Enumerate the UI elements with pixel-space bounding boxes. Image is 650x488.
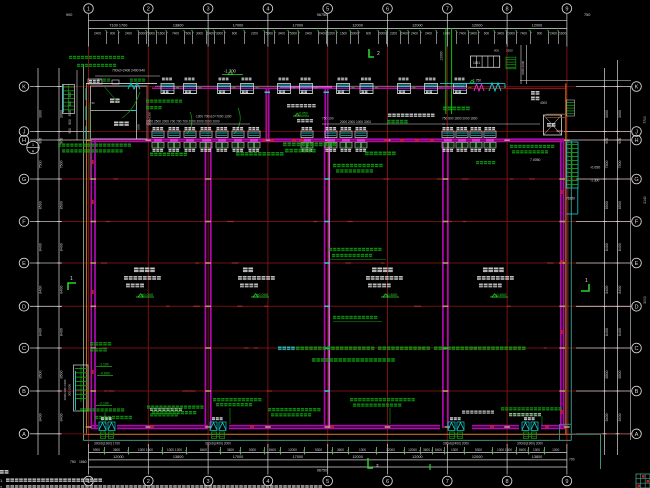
svg-text:13800: 13800: [532, 455, 543, 459]
svg-text:3000: 3000: [508, 31, 515, 35]
svg-text:G: G: [634, 177, 638, 183]
svg-text:2000x300=6300: 2000x300=6300: [63, 379, 67, 400]
svg-text:2.: 2.: [0, 485, 3, 488]
svg-text:1300 700x10=7000 1300: 1300 700x10=7000 1300: [196, 115, 232, 119]
svg-text:D: D: [634, 304, 638, 310]
svg-text:7500: 7500: [618, 161, 622, 169]
svg-text:8500: 8500: [605, 201, 609, 209]
svg-text:900: 900: [97, 78, 102, 82]
svg-text:1600: 1600: [158, 31, 165, 35]
svg-text:7500: 7500: [39, 161, 43, 169]
svg-text:7: 7: [446, 479, 449, 485]
svg-text:1300 1300: 1300 1300: [167, 448, 182, 452]
svg-text:600: 600: [484, 31, 490, 35]
svg-text:7500: 7500: [60, 161, 64, 169]
svg-text:13000: 13000: [440, 51, 444, 60]
svg-text:5000: 5000: [266, 31, 273, 35]
svg-text:3: 3: [207, 479, 210, 485]
svg-text:8400: 8400: [200, 448, 207, 452]
svg-text:3000: 3000: [216, 31, 223, 35]
svg-text::: :: [9, 470, 10, 475]
svg-text:600: 600: [186, 31, 192, 35]
svg-text:300x6(1900) 1700: 300x6(1900) 1700: [94, 442, 120, 446]
svg-text:8500: 8500: [39, 201, 43, 209]
svg-text:8400: 8400: [435, 448, 442, 452]
svg-text:700x2+2400 2400 940: 700x2+2400 2400 940: [112, 69, 145, 73]
svg-text:750 100: 750 100: [322, 117, 334, 121]
svg-text:1300 1300: 1300 1300: [497, 448, 512, 452]
svg-text:2400: 2400: [411, 31, 418, 35]
svg-text:H: H: [22, 138, 26, 144]
svg-text:8400: 8400: [39, 413, 43, 421]
svg-text:12000: 12000: [412, 23, 423, 27]
svg-text:7400: 7400: [459, 31, 466, 35]
svg-text:900: 900: [110, 31, 116, 35]
svg-text:12000: 12000: [288, 448, 297, 452]
svg-text:900: 900: [39, 138, 43, 144]
svg-text:K: K: [635, 85, 639, 91]
svg-text:1151: 1151: [473, 61, 480, 65]
svg-text:2200: 2200: [328, 31, 335, 35]
svg-text:-0.600: -0.600: [495, 292, 507, 297]
svg-text:1300 1300: 1300 1300: [138, 448, 153, 452]
svg-text:C: C: [22, 346, 26, 352]
svg-text:6: 6: [386, 7, 389, 13]
svg-text:4: 4: [266, 7, 269, 13]
svg-text:±0.000: ±0.000: [141, 292, 154, 297]
svg-text:D: D: [22, 304, 26, 310]
svg-text:1300: 1300: [552, 448, 559, 452]
svg-text:-1.300: -1.300: [224, 69, 237, 74]
svg-text:6: 6: [386, 479, 389, 485]
svg-text:600: 600: [232, 31, 238, 35]
svg-text:3600: 3600: [423, 448, 430, 452]
svg-text:3600: 3600: [113, 448, 120, 452]
svg-text:8: 8: [506, 479, 509, 485]
svg-text:3600x1900: 3600x1900: [521, 60, 525, 75]
svg-text:J: J: [23, 130, 26, 136]
svg-text:5: 5: [326, 479, 329, 485]
svg-text:300 1500: 300 1500: [68, 384, 72, 396]
svg-text:.: .: [103, 478, 104, 483]
svg-text:8500: 8500: [60, 201, 64, 209]
svg-text:-0.050: -0.050: [298, 112, 308, 116]
svg-text:F: F: [635, 220, 639, 226]
svg-text:12000: 12000: [472, 23, 483, 27]
svg-text:2400: 2400: [125, 31, 132, 35]
svg-text:2400: 2400: [319, 31, 326, 35]
svg-text:2140: 2140: [643, 196, 647, 204]
svg-text:-2.100: -2.100: [99, 402, 109, 406]
svg-text:2400: 2400: [401, 31, 408, 35]
svg-text:8500: 8500: [618, 371, 622, 379]
svg-text:8400: 8400: [618, 286, 622, 294]
svg-text:8: 8: [506, 7, 509, 13]
svg-text:-0.600: -0.600: [386, 292, 398, 297]
svg-text:790: 790: [569, 458, 575, 462]
svg-text:-1.100: -1.100: [99, 363, 109, 367]
svg-text:900: 900: [605, 138, 609, 144]
svg-text:96750: 96750: [317, 469, 328, 473]
svg-text:8500: 8500: [39, 371, 43, 379]
svg-text:1300: 1300: [451, 448, 458, 452]
svg-text:-1.300: -1.300: [590, 179, 600, 183]
svg-text:800: 800: [68, 119, 72, 125]
svg-text:2400: 2400: [94, 31, 101, 35]
svg-text:13800: 13800: [173, 455, 184, 459]
svg-text:8400: 8400: [269, 448, 276, 452]
svg-text:3000: 3000: [379, 31, 386, 35]
svg-text:J: J: [635, 130, 638, 136]
svg-text:76250: 76250: [566, 197, 575, 201]
svg-text:8500: 8500: [605, 371, 609, 379]
svg-text:96750: 96750: [317, 13, 328, 17]
svg-text:1.: 1.: [0, 478, 3, 483]
svg-text:1: 1: [585, 278, 588, 284]
svg-text:3000: 3000: [60, 110, 64, 118]
svg-text:500: 500: [68, 128, 72, 134]
svg-text:4000: 4000: [556, 129, 563, 133]
svg-text:4000: 4000: [540, 101, 547, 105]
svg-text:2200: 2200: [251, 31, 258, 35]
svg-text:5300: 5300: [249, 448, 256, 452]
svg-text:8400: 8400: [605, 243, 609, 251]
svg-text:1: 1: [87, 479, 90, 485]
svg-text:8400: 8400: [618, 413, 622, 421]
svg-text:12000: 12000: [352, 455, 363, 459]
svg-text:3000: 3000: [351, 31, 358, 35]
svg-text:7.0050: 7.0050: [530, 158, 540, 162]
svg-text:-0.050: -0.050: [590, 166, 600, 170]
svg-text:5300: 5300: [315, 448, 322, 452]
svg-text:F: F: [22, 220, 26, 226]
svg-text:8400: 8400: [60, 328, 64, 336]
svg-text:7100 1700: 7100 1700: [109, 23, 127, 27]
svg-text:G: G: [22, 177, 26, 183]
svg-text:8400: 8400: [618, 243, 622, 251]
svg-text:1800: 1800: [137, 123, 141, 130]
svg-text:8400: 8400: [618, 328, 622, 336]
svg-text:8400: 8400: [519, 448, 526, 452]
svg-text:7500: 7500: [605, 161, 609, 169]
svg-text:3000: 3000: [39, 110, 43, 118]
svg-text:750: 750: [584, 13, 590, 17]
svg-text:9: 9: [565, 479, 568, 485]
svg-text:2: 2: [147, 7, 150, 13]
svg-text:8400: 8400: [39, 243, 43, 251]
svg-text:8500: 8500: [60, 371, 64, 379]
svg-text:B: B: [22, 389, 26, 395]
svg-text:1300: 1300: [359, 448, 366, 452]
svg-text:2400: 2400: [425, 31, 432, 35]
svg-text:8400: 8400: [605, 328, 609, 336]
svg-text:900: 900: [618, 138, 622, 144]
svg-text:9: 9: [565, 7, 568, 13]
svg-text:8400: 8400: [605, 286, 609, 294]
svg-text:-0.600: -0.600: [100, 372, 110, 376]
svg-text:3000: 3000: [643, 296, 647, 304]
svg-text:7: 7: [446, 7, 449, 13]
svg-text:8400: 8400: [60, 413, 64, 421]
svg-text:2000 2000 1000 3000: 2000 2000 1000 3000: [340, 120, 371, 124]
svg-text:8400: 8400: [60, 286, 64, 294]
svg-text:3000: 3000: [196, 31, 203, 35]
svg-text:3: 3: [376, 463, 379, 468]
svg-text:750 800 1800 2000 1800: 750 800 1800 2000 1800: [442, 117, 478, 121]
svg-text:900: 900: [60, 138, 64, 144]
svg-text:3400: 3400: [278, 31, 285, 35]
svg-text:12000: 12000: [532, 23, 543, 27]
svg-text:1600: 1600: [559, 31, 566, 35]
svg-text:2: 2: [377, 51, 380, 57]
svg-text:3: 3: [207, 7, 210, 13]
svg-text:5: 5: [326, 7, 329, 13]
svg-text:90: 90: [92, 101, 96, 105]
svg-text:8400: 8400: [60, 243, 64, 251]
svg-text:12000: 12000: [412, 455, 423, 459]
svg-text:1600: 1600: [340, 31, 347, 35]
svg-text:600: 600: [366, 31, 372, 35]
svg-text:750: 750: [70, 460, 76, 464]
svg-text:B: B: [635, 389, 639, 395]
svg-text:2300: 2300: [506, 49, 513, 53]
svg-text:17000: 17000: [233, 23, 244, 27]
svg-text:E: E: [22, 261, 26, 267]
svg-text:900: 900: [537, 31, 543, 35]
svg-text:1560: 1560: [79, 460, 87, 464]
svg-text:E: E: [635, 261, 639, 267]
svg-text:3400: 3400: [470, 31, 477, 35]
svg-text:4: 4: [266, 479, 269, 485]
svg-text:2: 2: [147, 479, 150, 485]
svg-text:2400: 2400: [550, 31, 557, 35]
svg-text:5000: 5000: [290, 31, 297, 35]
svg-text:3400: 3400: [497, 31, 504, 35]
svg-text:2200: 2200: [390, 31, 397, 35]
svg-text:A: A: [635, 432, 639, 438]
svg-text:7400: 7400: [520, 31, 527, 35]
svg-text:17000: 17000: [293, 23, 304, 27]
svg-text:13800: 13800: [173, 23, 184, 27]
svg-text:17000: 17000: [233, 455, 244, 459]
svg-text:3000: 3000: [618, 110, 622, 118]
svg-text:8400: 8400: [605, 413, 609, 421]
svg-text:7400: 7400: [172, 31, 179, 35]
svg-text:2400: 2400: [305, 31, 312, 35]
svg-text:12000: 12000: [352, 23, 363, 27]
svg-text:7700: 7700: [643, 116, 647, 124]
svg-text:12000: 12000: [408, 448, 417, 452]
svg-text:9900: 9900: [93, 448, 100, 452]
svg-text:8400: 8400: [39, 286, 43, 294]
svg-text:A: A: [22, 432, 26, 438]
svg-text:3000: 3000: [148, 31, 155, 35]
svg-text:2000 2500 2000 700 700 700 200: 2000 2500 2000 700 700 700 2000 2000 200…: [146, 120, 220, 124]
svg-text:900: 900: [494, 49, 499, 53]
svg-text:12000: 12000: [472, 455, 483, 459]
svg-text:5000: 5000: [139, 31, 146, 35]
svg-text:8400: 8400: [39, 328, 43, 336]
svg-text:900: 900: [66, 13, 72, 17]
svg-text:K: K: [22, 85, 26, 91]
svg-text:±0.000: ±0.000: [256, 292, 269, 297]
svg-text:1600: 1600: [443, 31, 450, 35]
svg-text:1300: 1300: [533, 448, 540, 452]
svg-text:300x6(2400) 2000: 300x6(2400) 2000: [205, 442, 231, 446]
svg-text:H: H: [634, 138, 638, 144]
svg-text:300x6(1900) 2000: 300x6(1900) 2000: [517, 442, 543, 446]
svg-text:300x6(2400) 2000: 300x6(2400) 2000: [443, 442, 469, 446]
svg-text:1: 1: [70, 276, 73, 282]
svg-text:5300: 5300: [475, 448, 482, 452]
svg-text:1: 1: [87, 7, 90, 13]
svg-text:12000: 12000: [113, 455, 124, 459]
svg-text:3600: 3600: [227, 448, 234, 452]
svg-text:3600: 3600: [337, 448, 344, 452]
svg-text:8500: 8500: [618, 201, 622, 209]
svg-text:C: C: [634, 346, 638, 352]
svg-text:17000: 17000: [293, 455, 304, 459]
svg-text:3000: 3000: [605, 110, 609, 118]
